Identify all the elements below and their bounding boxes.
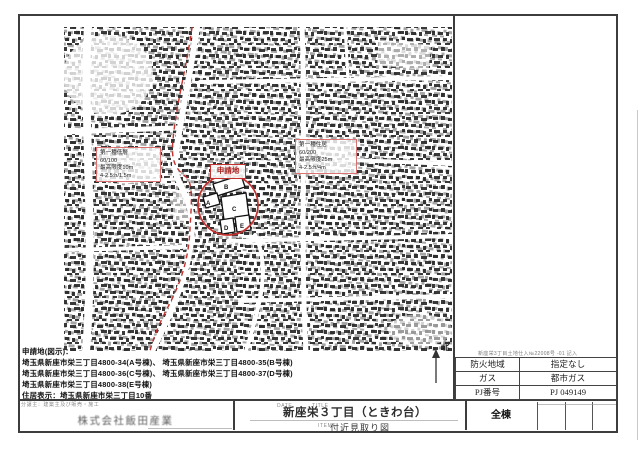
zoning-note-low-rise: 第一種低層 60/100 最高限度10m 4-2.5:h/1.5m xyxy=(96,147,161,182)
fire-zone-value: 指定なし xyxy=(520,358,616,371)
table-row: PJ番号 PJ 049149 xyxy=(456,385,616,399)
gas-value: 都市ガス xyxy=(520,372,616,385)
application-site-heading: 申請地(図示)： xyxy=(22,346,73,357)
zoning-low-slope: 4-2.5:h/1.5m xyxy=(100,173,158,181)
table-header-note: 新座栄3丁目土地仕入№22008号 -01 記入 xyxy=(478,350,577,357)
stamp-box-line-2 xyxy=(565,402,566,430)
application-site-line-1: 埼玉県新座市栄三丁目4800-34(A号棟)、 埼玉県新座市栄三丁目4800-3… xyxy=(22,357,293,368)
pj-number-label: PJ番号 xyxy=(456,386,520,399)
seller-note: 分譲主：建築主及び販売・施工 xyxy=(21,401,99,408)
site-info-table: 防火地域 指定なし ガス 都市ガス PJ番号 PJ 049149 xyxy=(455,357,617,400)
table-row: 防火地域 指定なし xyxy=(456,358,616,371)
scan-artifact-line-1 xyxy=(148,428,232,429)
scanned-site-map-document: A B C D E 第一種低層 60/100 最高限度10m 4-2.5:h/1… xyxy=(0,0,640,452)
strip-divider-1 xyxy=(233,400,235,430)
zoning-res-name: 第一種住居 xyxy=(299,142,354,150)
fire-zone-label: 防火地域 xyxy=(456,358,520,371)
zoning-res-height: 最高限度25m xyxy=(299,157,354,165)
zoning-low-height: 最高限度10m xyxy=(100,165,158,173)
zoning-note-residential: 第一種住居 60/200 最高限度25m 4-2.5:h/4m xyxy=(295,139,357,174)
gas-label: ガス xyxy=(456,372,520,385)
company-name: 株式会社飯田産業 xyxy=(18,413,233,428)
table-row: ガス 都市ガス xyxy=(456,371,616,385)
pj-number-value: PJ 049149 xyxy=(520,386,616,399)
address-display-line: 住居表示：埼玉県新座市栄三丁目10番 xyxy=(22,390,152,401)
site-callout-label: 申請地 xyxy=(210,164,246,179)
zoning-res-slope: 4-2.5:h/4m xyxy=(299,165,354,173)
drawing-title: 付近見取り図 xyxy=(280,421,440,434)
application-site-line-3: 埼玉県新座市栄三丁目4800-38(E号棟) xyxy=(22,379,152,390)
zoning-low-name: 第一種低層 xyxy=(100,150,158,158)
application-site-line-2: 埼玉県新座市栄三丁目4800-36(C号棟)、 埼玉県新座市栄三丁目4800-3… xyxy=(22,368,293,379)
north-label: 北 xyxy=(441,341,450,353)
column-divider-line xyxy=(453,14,455,400)
scope-label: 全棟 xyxy=(466,406,536,421)
stamp-box-top-line xyxy=(538,404,616,405)
project-title: 新座栄３丁目（ときわ台） xyxy=(250,404,460,420)
stamp-box-line-3 xyxy=(592,402,593,430)
stamp-box-line-1 xyxy=(537,402,538,430)
paper-edge-shadow xyxy=(637,110,638,440)
